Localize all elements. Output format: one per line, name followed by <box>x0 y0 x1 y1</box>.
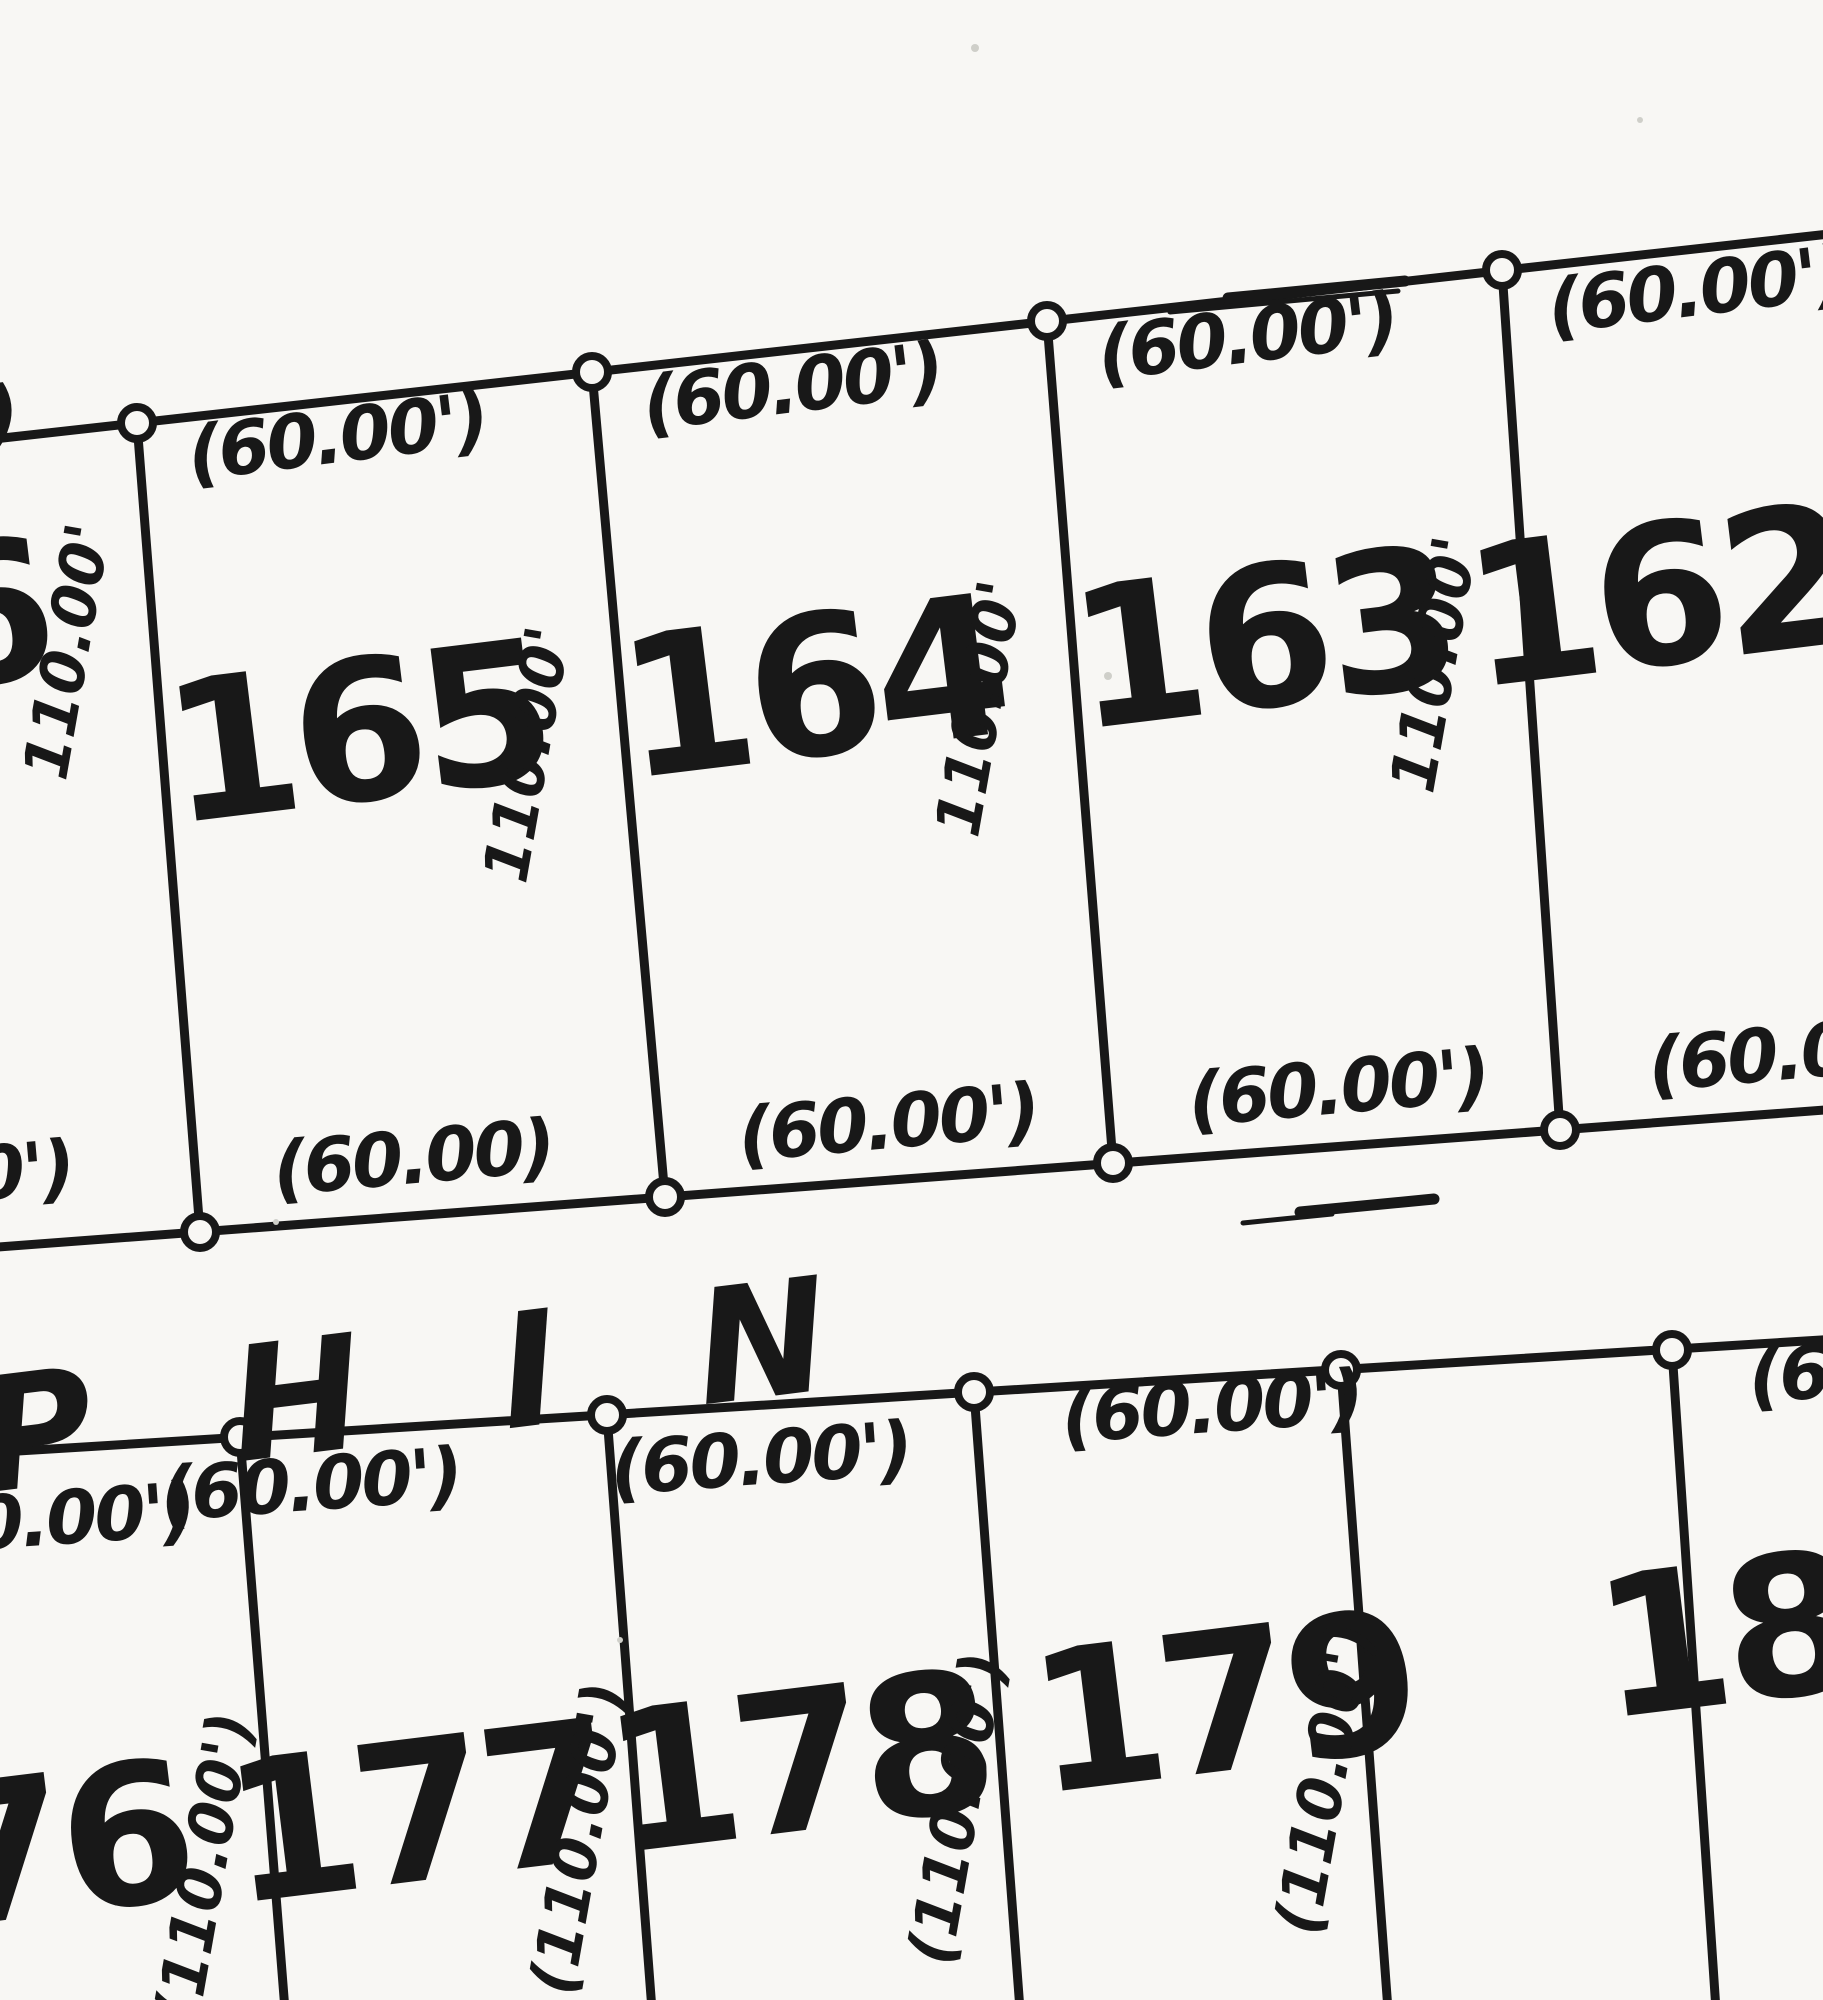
lot-180-number: 180 <box>1583 1492 1823 1764</box>
monument-163-162-front <box>1486 254 1518 286</box>
lot-164-bottom-frontage-label: (60.00') <box>734 1067 1041 1179</box>
monument-166-165-rear <box>184 1216 216 1248</box>
lot-164-top-frontage-label: (60.00') <box>638 326 947 448</box>
monument-164-163-front <box>1031 305 1063 337</box>
paper-speck <box>273 1219 279 1225</box>
plat-map-drawing: (60.00') (60.00') (60.00') (60.00') (60.… <box>0 0 1823 2000</box>
paper-speck <box>1104 672 1112 680</box>
lot-180-top-frontage-label: (60.00') <box>1745 1314 1823 1421</box>
lot-179-top-frontage-label: (60.00') <box>1058 1354 1364 1461</box>
monument-164-163-rear <box>1097 1147 1129 1179</box>
lot-166-bottom-frontage-label: (60.00') <box>0 1124 76 1236</box>
monument-180-181-front <box>1656 1334 1688 1366</box>
lot-163-bottom-frontage-label: (60.00') <box>1184 1032 1491 1144</box>
paper-speck <box>617 1637 623 1643</box>
lot-166-top-frontage-label: (60.00') <box>0 369 21 491</box>
station-tick-lower-thick <box>1300 1199 1434 1212</box>
lot-162-number: 162 <box>1453 461 1823 733</box>
plat-map: (60.00') (60.00') (60.00') (60.00') (60.… <box>0 0 1823 2000</box>
monument-163-162-rear <box>1544 1114 1576 1146</box>
lot-165-bottom-frontage-label: (60.00) <box>269 1103 556 1213</box>
monument-166-165-front <box>121 407 153 439</box>
monument-178-179-front <box>958 1376 990 1408</box>
paper-speck <box>971 44 979 52</box>
monument-165-164-rear <box>649 1181 681 1213</box>
lot-162-bottom-frontage-label: (60.00') <box>1644 997 1823 1109</box>
monument-165-164-front <box>576 356 608 388</box>
lot-165-top-frontage-label: (60.00') <box>183 376 492 498</box>
lot-163-top-frontage-label: (60.00') <box>1093 276 1402 398</box>
paper-speck <box>1637 117 1643 123</box>
